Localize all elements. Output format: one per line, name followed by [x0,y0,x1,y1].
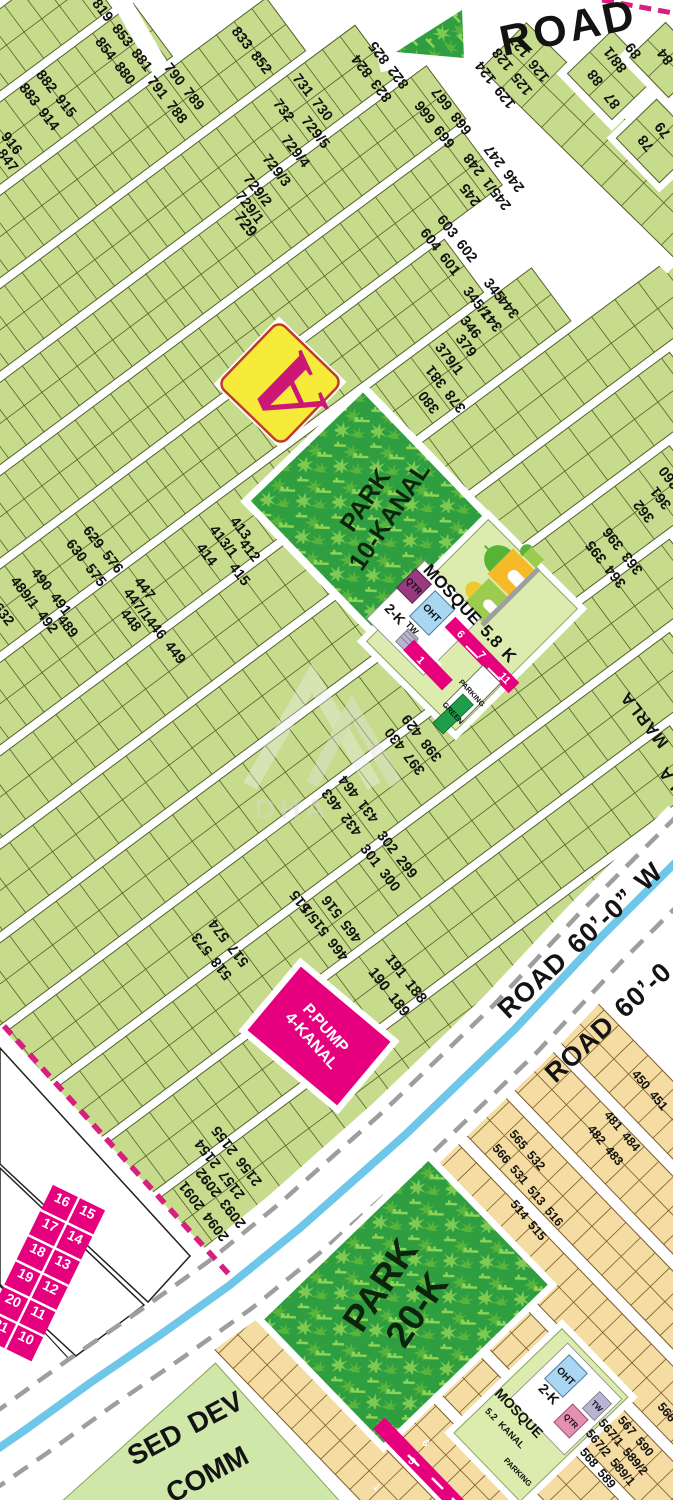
svg-text:DHA: DHA [255,793,331,824]
svg-text:......s: ......s [350,803,387,822]
